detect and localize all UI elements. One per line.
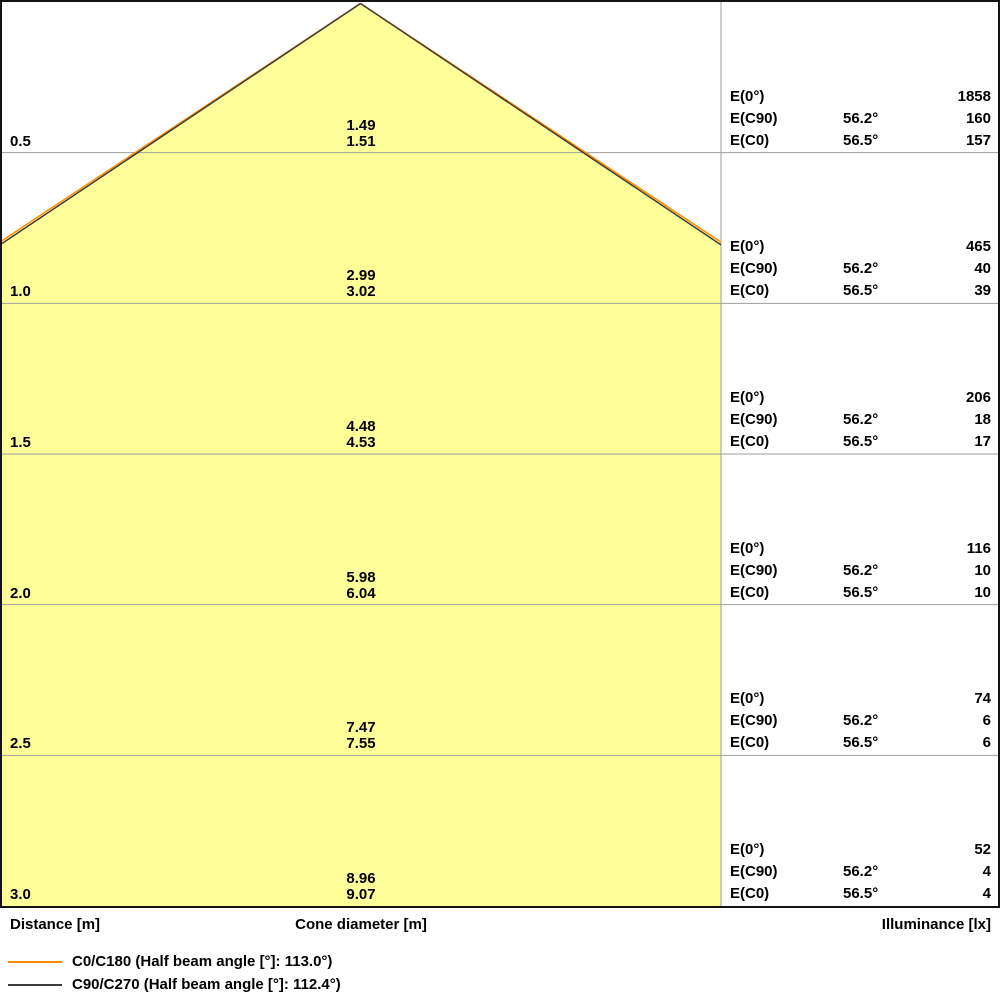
illuminance-ec90-line: E(C90)56.2°10 — [730, 560, 991, 582]
e0-label: E(0°) — [730, 839, 843, 861]
ec90-value: 10 — [923, 560, 991, 582]
illuminance-ec90-line: E(C90)56.2°40 — [730, 258, 991, 280]
ec90-label: E(C90) — [730, 108, 843, 130]
e0-angle — [843, 688, 923, 710]
cone-diameter-c0: 6.04 — [261, 586, 461, 602]
legend-item-c90-c270: C90/C270 (Half beam angle [°]: 112.4°) — [8, 973, 341, 996]
e0-value: 465 — [923, 236, 991, 258]
illuminance-axis-label: Illuminance [lx] — [882, 916, 991, 933]
ec0-angle: 56.5° — [843, 431, 923, 453]
e0-angle — [843, 839, 923, 861]
ec90-angle: 56.2° — [843, 409, 923, 431]
ec0-angle: 56.5° — [843, 582, 923, 604]
legend: C0/C180 (Half beam angle [°]: 113.0°) C9… — [8, 950, 341, 996]
distance-label: 2.0 — [10, 585, 31, 602]
cone-diameter-c90: 8.96 — [261, 871, 461, 887]
illuminance-ec0-line: E(C0)56.5°39 — [730, 280, 991, 302]
e0-angle — [843, 86, 923, 108]
e0-value: 74 — [923, 688, 991, 710]
illuminance-ec0-line: E(C0)56.5°157 — [730, 130, 991, 152]
ec90-label: E(C90) — [730, 409, 843, 431]
e0-angle — [843, 387, 923, 409]
c0-c180-line-swatch — [8, 961, 62, 963]
ec90-value: 160 — [923, 108, 991, 130]
e0-value: 52 — [923, 839, 991, 861]
e0-label: E(0°) — [730, 236, 843, 258]
cone-diameter-c0: 4.53 — [261, 435, 461, 451]
cone-diameter-values: 2.99 3.02 — [261, 268, 461, 300]
ec90-value: 18 — [923, 409, 991, 431]
cone-diameter-values: 7.47 7.55 — [261, 720, 461, 752]
illuminance-block: E(0°)52 E(C90)56.2°4 E(C0)56.5°4 — [730, 839, 991, 905]
cone-diameter-values: 1.49 1.51 — [261, 118, 461, 150]
ec90-label: E(C90) — [730, 861, 843, 883]
cone-diameter-c90: 5.98 — [261, 570, 461, 586]
illuminance-block: E(0°)465 E(C90)56.2°40 E(C0)56.5°39 — [730, 236, 991, 302]
e0-label: E(0°) — [730, 387, 843, 409]
e0-value: 116 — [923, 538, 991, 560]
ec90-angle: 56.2° — [843, 861, 923, 883]
ec0-angle: 56.5° — [843, 883, 923, 905]
c90-c270-line-swatch — [8, 984, 62, 986]
cone-diameter-c0: 1.51 — [261, 134, 461, 150]
cone-row-1.0m: 1.0 2.99 3.02 E(0°)465 E(C90)56.2°40 E(C… — [2, 153, 998, 304]
ec0-value: 10 — [923, 582, 991, 604]
ec90-value: 6 — [923, 710, 991, 732]
illuminance-e0-line: E(0°)1858 — [730, 86, 991, 108]
light-cone-diagram-page: 0.5 1.49 1.51 E(0°)1858 E(C90)56.2°160 E… — [0, 0, 1000, 1000]
distance-label: 1.0 — [10, 283, 31, 300]
illuminance-ec0-line: E(C0)56.5°17 — [730, 431, 991, 453]
illuminance-block: E(0°)206 E(C90)56.2°18 E(C0)56.5°17 — [730, 387, 991, 453]
distance-label: 2.5 — [10, 735, 31, 752]
illuminance-ec0-line: E(C0)56.5°10 — [730, 582, 991, 604]
ec90-value: 4 — [923, 861, 991, 883]
cone-chart-area: 0.5 1.49 1.51 E(0°)1858 E(C90)56.2°160 E… — [0, 0, 1000, 908]
ec0-angle: 56.5° — [843, 732, 923, 754]
illuminance-block: E(0°)116 E(C90)56.2°10 E(C0)56.5°10 — [730, 538, 991, 604]
ec0-label: E(C0) — [730, 582, 843, 604]
ec0-angle: 56.5° — [843, 130, 923, 152]
illuminance-e0-line: E(0°)116 — [730, 538, 991, 560]
ec0-value: 39 — [923, 280, 991, 302]
cone-row-1.5m: 1.5 4.48 4.53 E(0°)206 E(C90)56.2°18 E(C… — [2, 303, 998, 454]
e0-label: E(0°) — [730, 86, 843, 108]
ec90-angle: 56.2° — [843, 710, 923, 732]
ec0-label: E(C0) — [730, 732, 843, 754]
illuminance-ec90-line: E(C90)56.2°4 — [730, 861, 991, 883]
illuminance-ec0-line: E(C0)56.5°4 — [730, 883, 991, 905]
cone-diameter-c0: 9.07 — [261, 887, 461, 903]
cone-row-3.0m: 3.0 8.96 9.07 E(0°)52 E(C90)56.2°4 E(C0)… — [2, 755, 998, 906]
ec0-angle: 56.5° — [843, 280, 923, 302]
e0-angle — [843, 236, 923, 258]
cone-diameter-c90: 1.49 — [261, 118, 461, 134]
ec90-label: E(C90) — [730, 710, 843, 732]
cone-row-2.5m: 2.5 7.47 7.55 E(0°)74 E(C90)56.2°6 E(C0)… — [2, 605, 998, 756]
legend-item-c0-c180: C0/C180 (Half beam angle [°]: 113.0°) — [8, 950, 341, 973]
e0-label: E(0°) — [730, 538, 843, 560]
distance-label: 1.5 — [10, 434, 31, 451]
axis-labels: Distance [m] Cone diameter [m] Illuminan… — [0, 916, 1000, 936]
illuminance-ec90-line: E(C90)56.2°6 — [730, 710, 991, 732]
c90-c270-legend-label: C90/C270 (Half beam angle [°]: 112.4°) — [72, 976, 341, 993]
cone-diameter-c90: 2.99 — [261, 268, 461, 284]
ec0-value: 4 — [923, 883, 991, 905]
cone-diameter-c0: 3.02 — [261, 284, 461, 300]
ec0-value: 157 — [923, 130, 991, 152]
illuminance-block: E(0°)74 E(C90)56.2°6 E(C0)56.5°6 — [730, 688, 991, 754]
illuminance-e0-line: E(0°)206 — [730, 387, 991, 409]
cone-row-0.5m: 0.5 1.49 1.51 E(0°)1858 E(C90)56.2°160 E… — [2, 2, 998, 153]
ec0-label: E(C0) — [730, 431, 843, 453]
cone-diameter-values: 4.48 4.53 — [261, 419, 461, 451]
illuminance-block: E(0°)1858 E(C90)56.2°160 E(C0)56.5°157 — [730, 86, 991, 152]
cone-diameter-values: 5.98 6.04 — [261, 570, 461, 602]
e0-angle — [843, 538, 923, 560]
ec0-label: E(C0) — [730, 130, 843, 152]
ec90-label: E(C90) — [730, 258, 843, 280]
cone-diameter-c0: 7.55 — [261, 736, 461, 752]
cone-diameter-axis-label: Cone diameter [m] — [211, 916, 511, 933]
e0-value: 1858 — [923, 86, 991, 108]
cone-row-2.0m: 2.0 5.98 6.04 E(0°)116 E(C90)56.2°10 E(C… — [2, 454, 998, 605]
ec90-angle: 56.2° — [843, 108, 923, 130]
cone-diameter-c90: 7.47 — [261, 720, 461, 736]
illuminance-e0-line: E(0°)52 — [730, 839, 991, 861]
c0-c180-legend-label: C0/C180 (Half beam angle [°]: 113.0°) — [72, 953, 332, 970]
illuminance-e0-line: E(0°)465 — [730, 236, 991, 258]
distance-label: 0.5 — [10, 133, 31, 150]
illuminance-ec0-line: E(C0)56.5°6 — [730, 732, 991, 754]
illuminance-ec90-line: E(C90)56.2°18 — [730, 409, 991, 431]
ec0-label: E(C0) — [730, 280, 843, 302]
ec90-label: E(C90) — [730, 560, 843, 582]
distance-label: 3.0 — [10, 886, 31, 903]
ec0-label: E(C0) — [730, 883, 843, 905]
ec0-value: 6 — [923, 732, 991, 754]
distance-axis-label: Distance [m] — [10, 916, 100, 933]
cone-diameter-c90: 4.48 — [261, 419, 461, 435]
illuminance-e0-line: E(0°)74 — [730, 688, 991, 710]
illuminance-ec90-line: E(C90)56.2°160 — [730, 108, 991, 130]
ec90-value: 40 — [923, 258, 991, 280]
ec0-value: 17 — [923, 431, 991, 453]
e0-label: E(0°) — [730, 688, 843, 710]
e0-value: 206 — [923, 387, 991, 409]
cone-diameter-values: 8.96 9.07 — [261, 871, 461, 903]
ec90-angle: 56.2° — [843, 560, 923, 582]
ec90-angle: 56.2° — [843, 258, 923, 280]
